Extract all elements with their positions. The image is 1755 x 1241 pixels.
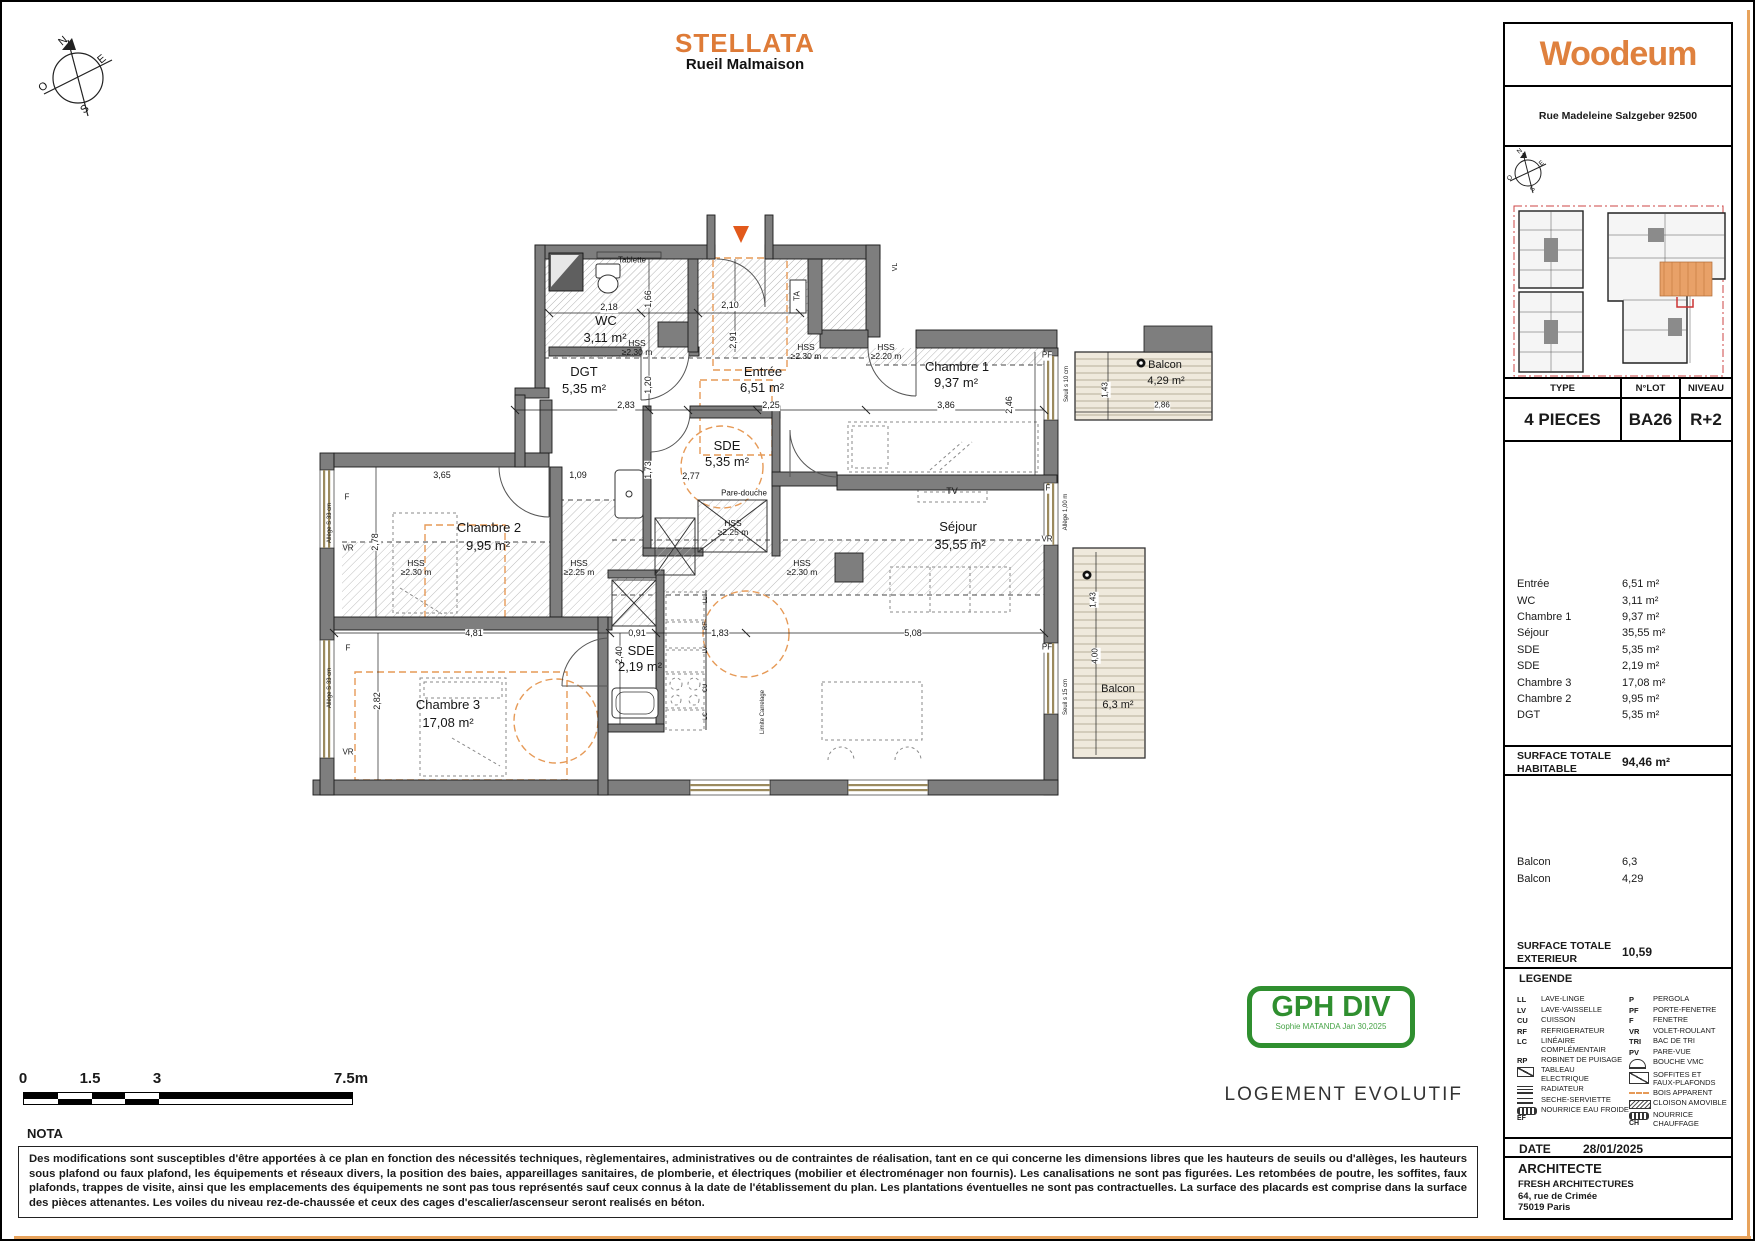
scalebar-label: 7.5m [334,1070,368,1087]
plan-label: 2,19 m² [618,660,662,674]
plan-label: VR [342,749,353,758]
plan-label: 1,43 [1090,592,1099,608]
plan-label: Entrée [744,365,782,379]
legend-label: CLOISON AMOVIBLE [1653,1099,1727,1108]
legend-abbr: LL [1517,995,1526,1004]
architect-block: ARCHITECTE FRESH ARCHITECTURES 64, rue d… [1505,1158,1731,1220]
surface-habitable-value: 94,46 m² [1622,755,1670,769]
architect-address2: 75019 Paris [1518,1202,1570,1213]
lot-value: BA26 [1620,399,1679,440]
room-name: WC [1517,595,1622,607]
legend-icon [1629,1059,1646,1069]
legend-abbr: TRI [1629,1037,1641,1046]
plan-label: Chambre 3 [416,698,480,712]
legend-row: BOUCHE VMC [1629,1058,1733,1069]
room-area: 6,51 m² [1622,578,1659,590]
legend-abbr: PF [1629,1006,1639,1015]
plan-label: 35,55 m² [934,538,985,552]
legend-row: PV PARE-VUE [1629,1048,1733,1057]
legend-row: CU CUISSON [1517,1016,1629,1025]
date-block: DATE 28/01/2025 [1505,1137,1731,1158]
room-name: SDE [1517,660,1622,672]
plan-label: HSS ≥2.30 m [622,339,653,357]
legend-label: PERGOLA [1653,995,1689,1004]
room-name: SDE [1517,644,1622,656]
plan-label: 2,18 [600,303,618,313]
legend-label: BOUCHE VMC [1653,1058,1704,1067]
project-title: STELLATA [675,28,815,59]
legend-icon [1517,1097,1533,1104]
surface-habitable-block: SURFACE TOTALE HABITABLE 94,46 m² [1505,745,1731,776]
plan-label: 2,77 [682,472,700,482]
room-area: 9,95 m² [1622,693,1659,705]
plan-label: 2,10 [721,301,739,311]
nota-title: NOTA [27,1126,63,1141]
exterior-name: Balcon [1517,856,1622,868]
scalebar-label: 0 [19,1070,27,1087]
plan-label: HSS ≥2.30 m [791,343,822,361]
scalebar-label: 1.5 [80,1070,101,1087]
legend-section: LEGENDE LL LAVE-LINGE LV LAVE-VAIS [1505,969,1731,1137]
legend-icon [1629,1072,1649,1084]
plan-label: VR [1041,536,1052,545]
plan-label: 2,78 [371,533,381,551]
legend-icon [1517,1086,1533,1094]
legend-title: LEGENDE [1519,973,1572,985]
surface-exterieur-value: 10,59 [1622,945,1652,959]
legend-icon-sub: EF [1517,1115,1526,1122]
legend-abbr: F [1629,1016,1634,1025]
exterior-area: 4,29 [1622,873,1643,885]
stamp-signature: Sophie MATANDA Jan 30,2025 [1252,1022,1410,1031]
legend-row: PF PORTE-FENETRE [1629,1006,1733,1015]
legend-abbr: CU [1517,1016,1528,1025]
plan-label: 5,35 m² [705,455,749,469]
legend-row: RP ROBINET DE PUISAGE [1517,1056,1629,1065]
lot-header: N°LOT [1620,379,1679,397]
plan-label: 3,65 [433,471,451,481]
legend-label: REFRIGERATEUR [1541,1027,1605,1036]
legend-abbr: VR [1629,1027,1639,1036]
plan-label: WC [595,314,617,328]
legend-label: BOIS APPARENT [1653,1089,1712,1098]
legend-column-right: P PERGOLA PF PORTE-FENETRE F [1629,995,1733,1130]
plan-label: Chambre 2 [457,521,521,535]
plan-label: 1,73 [644,461,654,479]
plan-label: 2,91 [729,331,739,349]
plan-label: 4,29 m² [1147,376,1184,388]
legend-row: SECHE-SERVIETTE [1517,1096,1629,1105]
legend-label: CUISSON [1541,1016,1575,1025]
room-list: Entrée 6,51 m² WC 3,11 m² Chambre 1 9,37… [1517,576,1723,724]
plan-label: 2,46 [1005,396,1015,414]
legend-row: P PERGOLA [1629,995,1733,1004]
plan-label: 6,3 m² [1102,700,1133,712]
plan-label: 1,83 [711,629,729,639]
room-name: DGT [1517,709,1622,721]
room-row: DGT 5,35 m² [1517,707,1723,723]
exterior-row: Balcon 4,29 [1517,870,1723,886]
brand-logo: Woodeum [1505,24,1731,87]
legend-row: TRI BAC DE TRI [1629,1037,1733,1046]
room-area: 9,37 m² [1622,611,1659,623]
project-address: Rue Madeleine Salzgeber 92500 [1505,87,1731,147]
legend-row: LC LINÉAIRE COMPLÉMENTAIR [1517,1037,1629,1054]
legend-label: NOURRICE CHAUFFAGE [1653,1111,1733,1128]
plan-label: LV [703,647,709,654]
plan-label: 5,35 m² [562,382,606,396]
plan-label: HSS ≥2.20 m [871,343,902,361]
room-name: Chambre 1 [1517,611,1622,623]
plan-label: 1,20 [644,376,654,394]
scalebar-label: 3 [153,1070,161,1087]
room-name: Entrée [1517,578,1622,590]
plan-label: 17,08 m² [422,716,473,730]
legend-icon [1517,1067,1534,1077]
plan-label: RF [703,622,709,630]
legend-row: RADIATEUR [1517,1085,1629,1094]
type-value: 4 PIECES [1505,399,1620,440]
plan-label: Balcon [1148,360,1182,372]
exterior-name: Balcon [1517,873,1622,885]
plan-label: VL [892,263,900,272]
legend-row: F FENETRE [1629,1016,1733,1025]
scalebar-labels: 01.537.5m [0,1070,420,1088]
plan-label: Pare-douche [721,490,767,499]
plan-label: 9,37 m² [934,376,978,390]
legend-label: PARE-VUE [1653,1048,1691,1057]
plan-label: LC [703,712,709,720]
room-name: Chambre 2 [1517,693,1622,705]
plan-label: Allège S 33 cm [327,503,333,543]
plan-label: 3,86 [937,401,955,411]
room-areas-section: Entrée 6,51 m² WC 3,11 m² Chambre 1 9,37… [1505,442,1731,745]
plan-label: HSS ≥2.30 m [401,559,432,577]
exterior-row: Balcon 6,3 [1517,854,1723,870]
stamp-text: GPH DIV [1252,992,1410,1024]
plan-label: Chambre 1 [925,360,989,374]
project-city: Rueil Malmaison [686,56,804,73]
legend-label: RADIATEUR [1541,1085,1584,1094]
legend-icon [1517,1107,1537,1115]
legend-row: EF NOURRICE EAU FROIDE [1517,1106,1629,1122]
room-row: Entrée 6,51 m² [1517,576,1723,592]
legend-icon [1629,1100,1651,1109]
plan-label: F [1046,485,1051,494]
room-row: Chambre 1 9,37 m² [1517,609,1723,625]
legend-abbr: LV [1517,1006,1526,1015]
plan-label: Tablette [618,257,646,266]
date-value: 28/01/2025 [1583,1142,1643,1156]
room-row: WC 3,11 m² [1517,592,1723,608]
architect-address1: 64, rue de Crimée [1518,1191,1597,1202]
plan-label: F [345,494,350,503]
plan-label: 4,00 [1092,648,1101,664]
plan-label: Seuil s 15 cm [1063,679,1069,715]
plan-label: 1,43 [1102,382,1111,398]
plan-label: TV [946,487,958,497]
niveau-value: R+2 [1679,399,1731,440]
legend-icon [1629,1092,1649,1094]
title-block-sidebar: Woodeum Rue Madeleine Salzgeber 92500 TY… [1503,22,1733,1220]
type-header: TYPE [1505,379,1620,397]
nota-text: Des modifications sont susceptibles d'êt… [18,1146,1478,1218]
legend-row: LV LAVE-VAISSELLE [1517,1006,1629,1015]
plan-labels-layer: TabletteWC3,11 m²HSS ≥2.30 m2,181,662,10… [0,0,1755,1241]
legend-label: LINÉAIRE COMPLÉMENTAIR [1541,1037,1606,1054]
legend-abbr: P [1629,995,1634,1004]
plan-label: SDE [628,644,655,658]
legend-row: VR VOLET-ROULANT [1629,1027,1733,1036]
legend-label: LAVE-VAISSELLE [1541,1006,1602,1015]
plan-label: HSS ≥2.25 m [564,559,595,577]
legend-icon [1629,1112,1649,1120]
legend-row: CLOISON AMOVIBLE [1629,1099,1733,1109]
legend-row: RF REFRIGERATEUR [1517,1027,1629,1036]
plan-label: 5,08 [904,629,922,639]
logement-evolutif-note: LOGEMENT EVOLUTIF [1225,1084,1463,1106]
approval-stamp: GPH DIV Sophie MATANDA Jan 30,2025 [1247,986,1415,1048]
plan-label: TA [794,291,803,301]
plan-label: DGT [570,365,597,379]
plan-label: 3,11 m² [583,331,626,345]
room-row: Chambre 3 17,08 m² [1517,674,1723,690]
plan-label: Seuil s 10 cm [1064,366,1070,402]
legend-label: NOURRICE EAU FROIDE [1541,1106,1629,1115]
plan-label: SDE [714,439,741,453]
surface-exterieur-block: SURFACE TOTALE EXTERIEUR 10,59 [1505,937,1731,969]
site-plan-section [1505,147,1731,379]
plan-label: Balcon [1101,684,1135,696]
legend-label: PORTE-FENETRE [1653,1006,1716,1015]
legend-label: TABLEAU ELECTRIQUE [1541,1066,1589,1083]
legend-label: SECHE-SERVIETTE [1541,1096,1611,1105]
plan-label: 1,66 [644,290,654,308]
surface-habitable-label: SURFACE TOTALE HABITABLE [1517,750,1611,775]
plan-label: 6,51 m² [740,381,784,395]
plan-label: Limite Carrelage [760,690,766,734]
room-area: 5,35 m² [1622,709,1659,721]
plan-label: 9,95 m² [466,539,510,553]
legend-abbr: RP [1517,1056,1527,1065]
plan-label: PF [1042,352,1052,361]
exterior-area: 6,3 [1622,856,1637,868]
plan-label: PF [1042,644,1052,653]
room-area: 3,11 m² [1622,595,1658,607]
legend-label: LAVE-LINGE [1541,995,1585,1004]
plan-label: 1,09 [569,471,587,481]
scale-bar [23,1092,353,1105]
plan-label: CU [703,684,709,693]
plan-label: LL [703,597,709,604]
lot-table-values: 4 PIECES BA26 R+2 [1505,399,1731,442]
plan-label: Séjour [939,520,977,534]
exterior-areas-section: Balcon 6,3 Balcon 4,29 [1505,776,1731,937]
legend-row: LL LAVE-LINGE [1517,995,1629,1004]
plan-label: 2,83 [617,401,635,411]
room-area: 35,55 m² [1622,627,1665,639]
room-row: Séjour 35,55 m² [1517,625,1723,641]
plan-label: Allège S 33 cm [327,668,333,708]
legend-label: VOLET-ROULANT [1653,1027,1716,1036]
legend-abbr: PV [1629,1048,1639,1057]
legend-label: FENETRE [1653,1016,1688,1025]
legend-row: TABLEAU ELECTRIQUE [1517,1066,1629,1083]
niveau-header: NIVEAU [1679,379,1731,397]
plan-label: Allège 1,00 m [1063,494,1069,531]
room-name: Séjour [1517,627,1622,639]
lot-table-header: TYPE N°LOT NIVEAU [1505,379,1731,399]
legend-row: SOFFITES ET FAUX-PLAFONDS [1629,1071,1733,1088]
plan-label: HSS ≥2.25 m [718,519,749,537]
legend-column-left: LL LAVE-LINGE LV LAVE-VAISSELLE CU [1517,995,1629,1123]
architect-label: ARCHITECTE [1518,1161,1602,1176]
legend-label: SOFFITES ET FAUX-PLAFONDS [1653,1071,1716,1088]
room-row: Chambre 2 9,95 m² [1517,691,1723,707]
plan-label: 2,86 [1154,402,1170,411]
legend-abbr: LC [1517,1037,1527,1046]
plan-label: VR [342,545,353,554]
legend-label: BAC DE TRI [1653,1037,1695,1046]
plan-label: 2,25 [762,401,780,411]
plan-label: 0,91 [628,629,646,639]
legend-row: CH NOURRICE CHAUFFAGE [1629,1111,1733,1128]
plan-label: F [346,645,351,654]
room-row: SDE 2,19 m² [1517,658,1723,674]
room-area: 17,08 m² [1622,677,1665,689]
plan-label: 2,82 [373,692,383,710]
legend-abbr: RF [1517,1027,1527,1036]
exterior-list: Balcon 6,3 Balcon 4,29 [1517,854,1723,887]
legend-icon-sub: CH [1629,1120,1639,1127]
room-row: SDE 5,35 m² [1517,642,1723,658]
legend-row: BOIS APPARENT [1629,1089,1733,1098]
plan-label: 4,81 [465,629,483,639]
date-label: DATE [1519,1142,1551,1156]
surface-exterieur-label: SURFACE TOTALE EXTERIEUR [1517,940,1611,965]
plan-label: HSS ≥2.30 m [787,559,818,577]
architect-name: FRESH ARCHITECTURES [1518,1179,1634,1190]
room-area: 2,19 m² [1622,660,1659,672]
legend-label: ROBINET DE PUISAGE [1541,1056,1622,1065]
room-name: Chambre 3 [1517,677,1622,689]
room-area: 5,35 m² [1622,644,1659,656]
